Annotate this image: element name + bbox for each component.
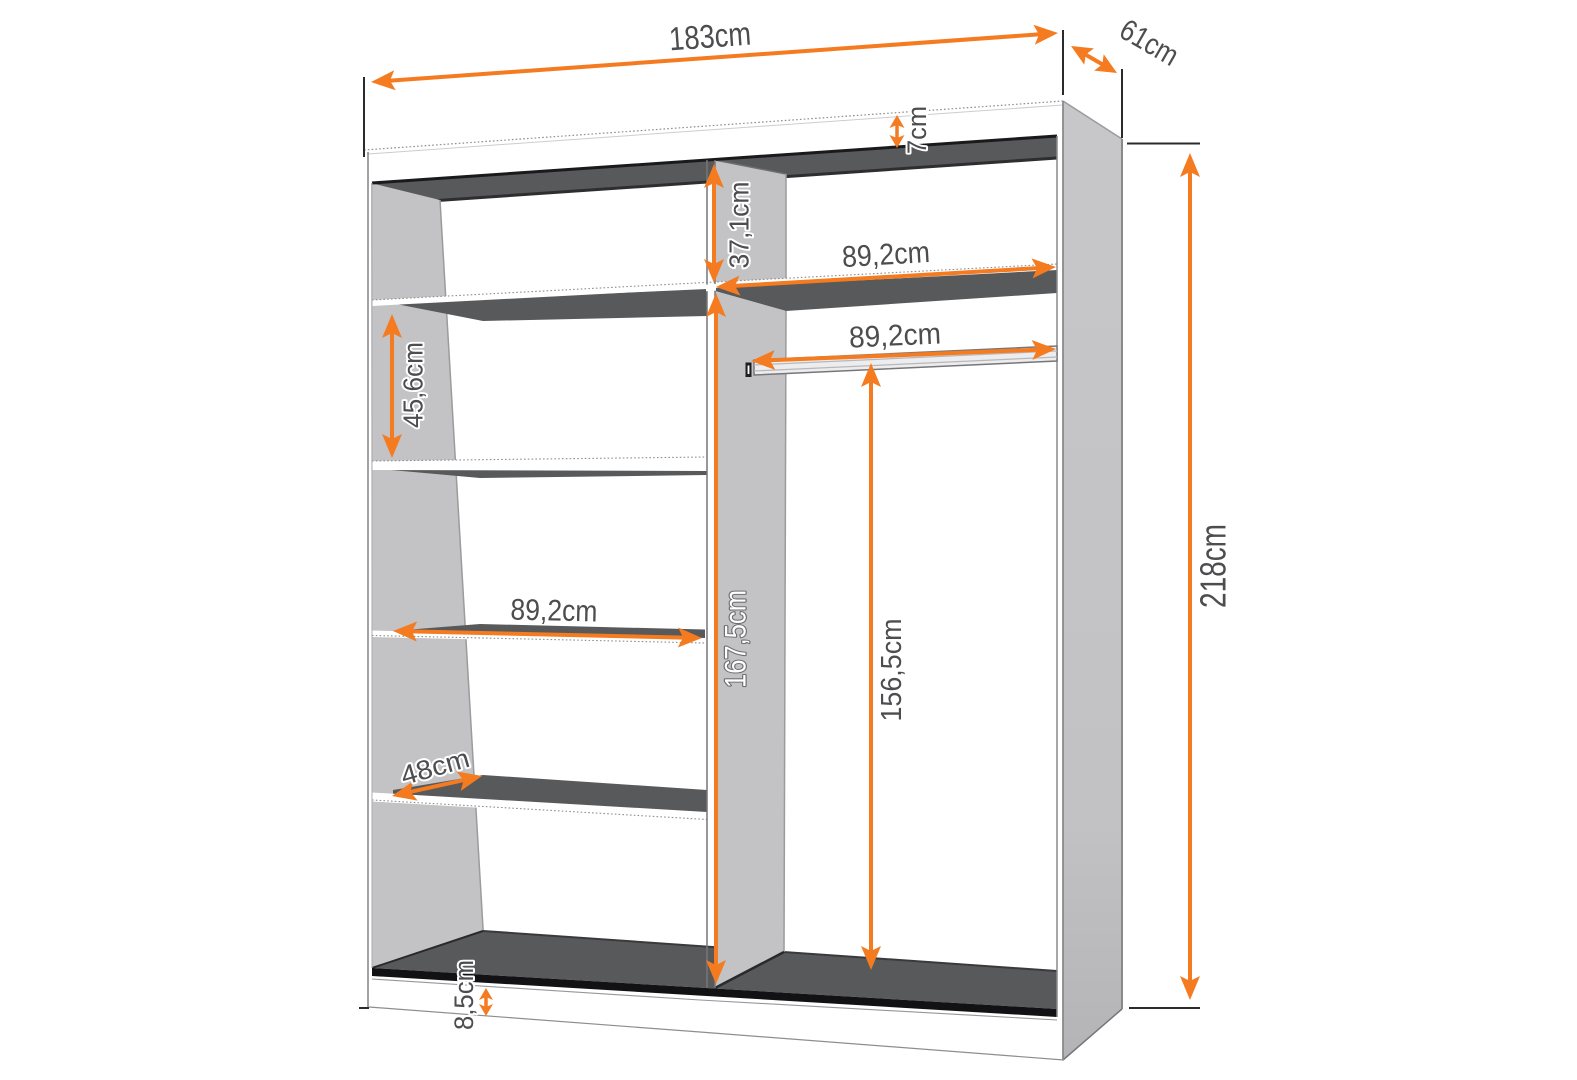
svg-text:7cm: 7cm — [902, 106, 932, 154]
svg-text:45,6cm: 45,6cm — [398, 342, 429, 428]
svg-text:89,2cm: 89,2cm — [510, 594, 598, 629]
svg-text:156,5cm: 156,5cm — [876, 619, 908, 722]
svg-text:37,1cm: 37,1cm — [724, 182, 755, 269]
svg-text:183cm: 183cm — [668, 15, 752, 58]
svg-text:8,5cm: 8,5cm — [449, 960, 479, 1030]
svg-text:218cm: 218cm — [1193, 524, 1234, 608]
svg-text:89,2cm: 89,2cm — [848, 317, 941, 354]
svg-text:167,5cm: 167,5cm — [720, 590, 753, 688]
svg-text:89,2cm: 89,2cm — [841, 236, 931, 274]
